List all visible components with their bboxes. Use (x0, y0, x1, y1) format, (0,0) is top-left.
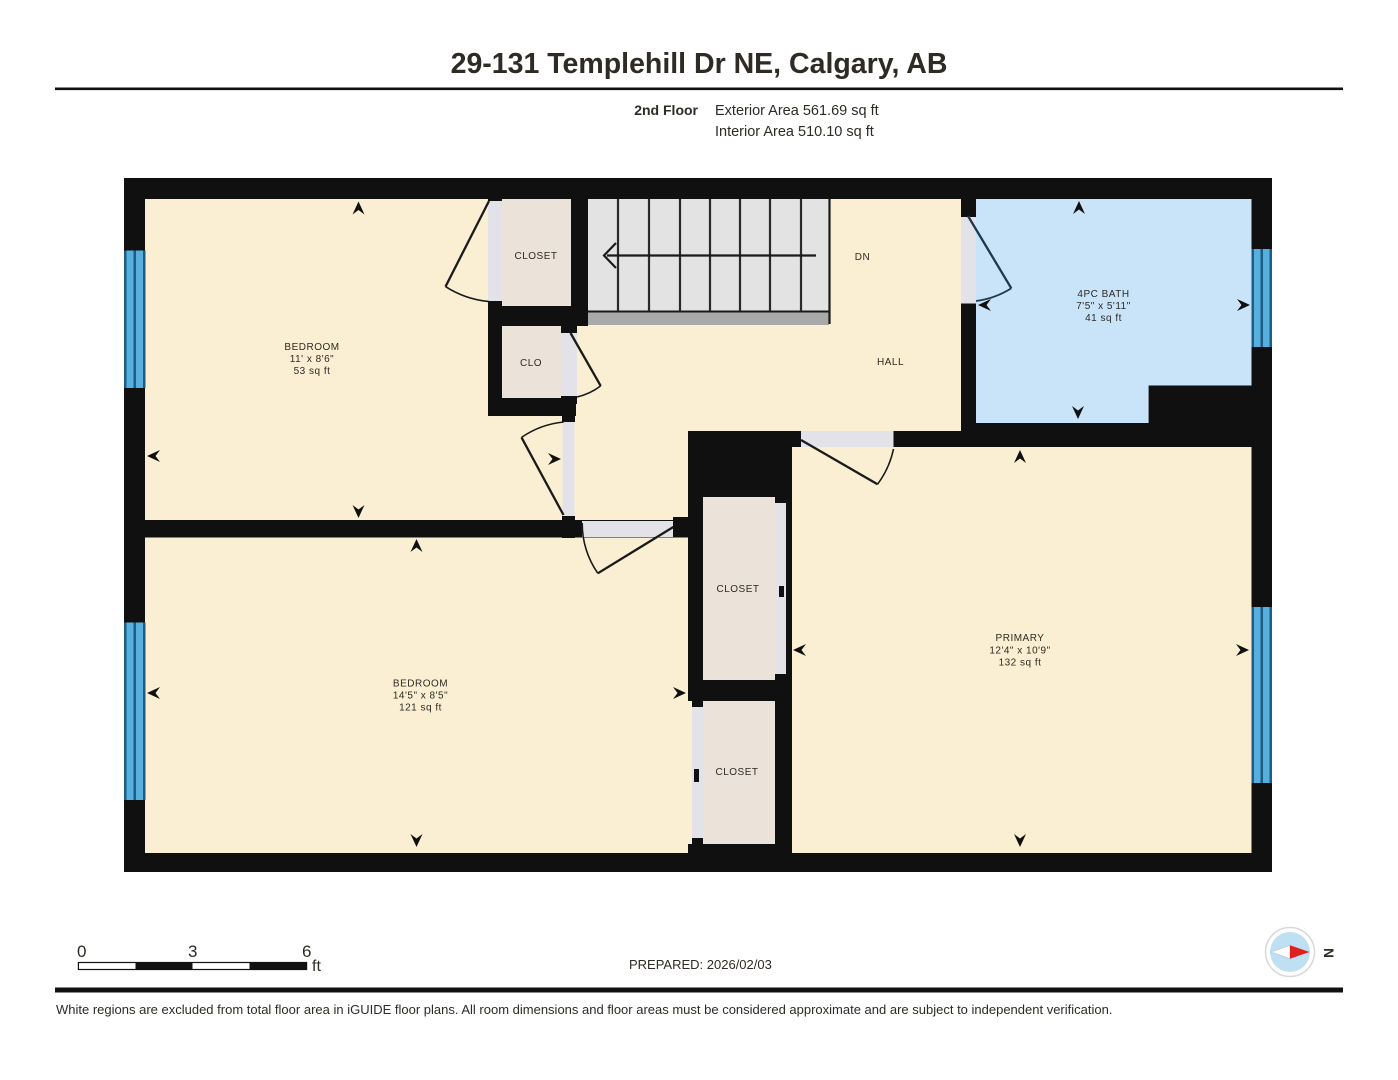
svg-text:White regions are excluded fro: White regions are excluded from total fl… (56, 1002, 1112, 1017)
svg-text:Exterior Area 561.69 sq ft: Exterior Area 561.69 sq ft (715, 103, 879, 119)
svg-text:0: 0 (77, 942, 86, 961)
svg-text:121 sq ft: 121 sq ft (399, 703, 442, 714)
svg-text:41 sq ft: 41 sq ft (1085, 313, 1122, 324)
svg-text:N: N (1321, 948, 1336, 958)
svg-text:14'5" x 8'5": 14'5" x 8'5" (393, 691, 448, 702)
svg-text:CLOSET: CLOSET (716, 584, 759, 595)
svg-text:6: 6 (302, 942, 311, 961)
svg-text:PREPARED: 2026/02/03: PREPARED: 2026/02/03 (629, 957, 772, 972)
svg-text:Interior Area 510.10 sq ft: Interior Area 510.10 sq ft (715, 124, 874, 140)
svg-text:12'4" x 10'9": 12'4" x 10'9" (989, 646, 1050, 657)
svg-text:BEDROOM: BEDROOM (284, 342, 339, 353)
svg-text:4PC BATH: 4PC BATH (1077, 289, 1129, 300)
svg-text:132 sq ft: 132 sq ft (999, 658, 1042, 669)
svg-text:CLOSET: CLOSET (514, 251, 557, 262)
svg-text:11' x 8'6": 11' x 8'6" (290, 354, 334, 365)
svg-text:2nd Floor: 2nd Floor (634, 102, 698, 118)
svg-text:BEDROOM: BEDROOM (393, 679, 448, 690)
svg-text:3: 3 (188, 942, 197, 961)
svg-text:CLOSET: CLOSET (715, 767, 758, 778)
svg-text:DN: DN (855, 252, 870, 263)
svg-text:ft: ft (312, 958, 321, 975)
svg-text:CLO: CLO (520, 358, 542, 369)
svg-text:HALL: HALL (877, 357, 904, 368)
svg-text:PRIMARY: PRIMARY (996, 633, 1045, 644)
svg-text:53 sq ft: 53 sq ft (294, 366, 331, 377)
svg-text:29-131 Templehill Dr NE, Calga: 29-131 Templehill Dr NE, Calgary, AB (451, 48, 948, 80)
svg-text:7'5" x 5'11": 7'5" x 5'11" (1076, 301, 1131, 312)
